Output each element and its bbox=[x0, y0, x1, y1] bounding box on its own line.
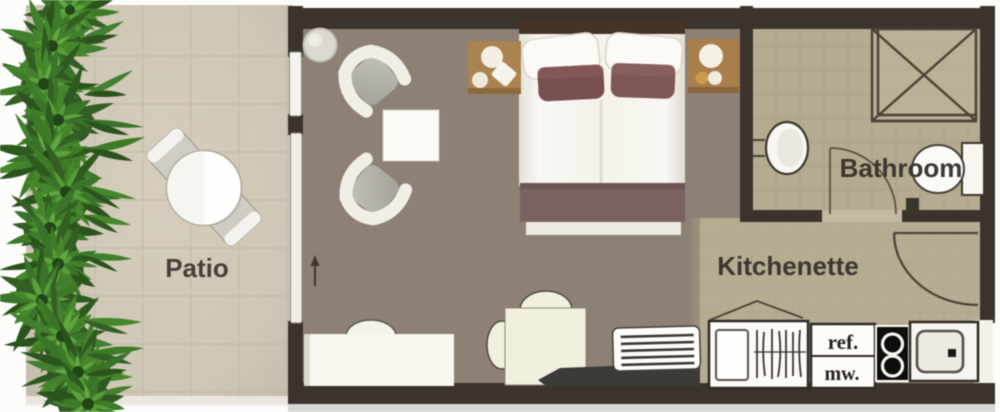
svg-text:Kitchenette: Kitchenette bbox=[717, 251, 859, 281]
svg-text:Bathroom: Bathroom bbox=[840, 153, 963, 183]
svg-text:mw.: mw. bbox=[825, 363, 860, 385]
svg-text:Patio: Patio bbox=[165, 253, 229, 283]
svg-text:ref.: ref. bbox=[828, 330, 859, 354]
